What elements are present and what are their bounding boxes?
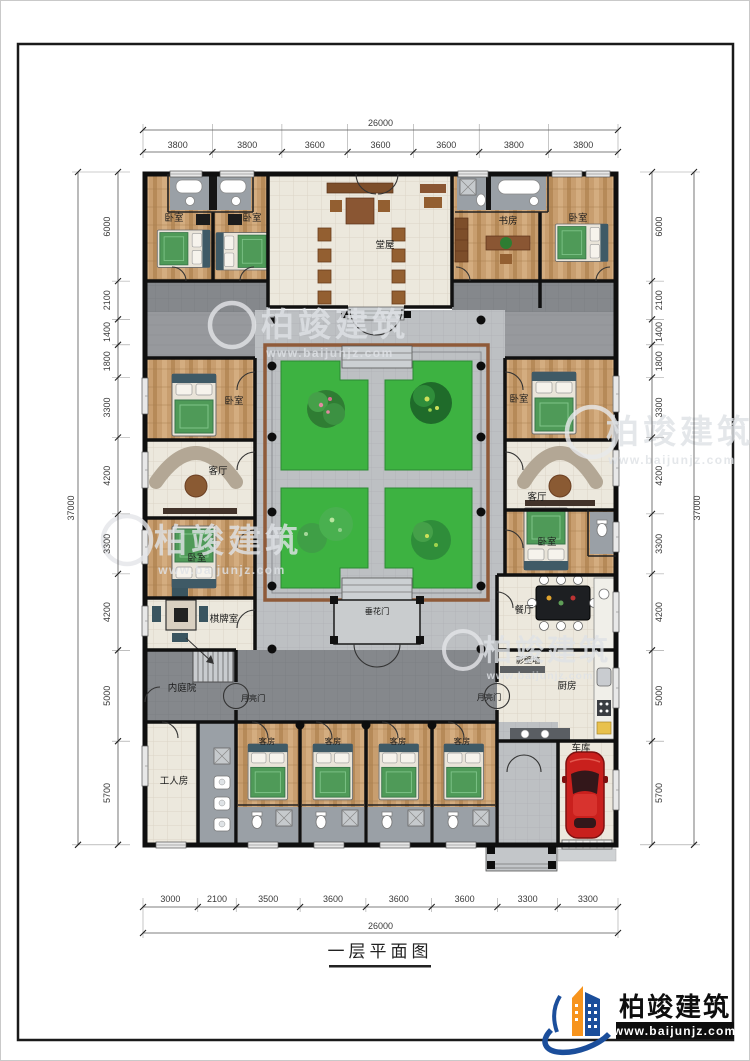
room-label-moon-gate: 月亮门: [477, 692, 502, 702]
bed: [216, 233, 269, 270]
dim-label: 4200: [102, 602, 112, 622]
tree-bottom-right: [411, 520, 451, 560]
dim-label: 3300: [654, 534, 664, 554]
room-label-bedroom: 卧室: [164, 212, 183, 224]
room-label-living: 客厅: [208, 465, 228, 477]
hall-chair: [378, 200, 390, 212]
dim-label: 3300: [102, 397, 112, 417]
watermark-site: www.baijunjz.com: [486, 670, 594, 682]
altar-table: [327, 183, 393, 193]
dim-label: 3800: [237, 140, 257, 150]
porch-left: [145, 312, 255, 358]
bed: [313, 744, 353, 800]
dim-label: 6000: [654, 217, 664, 237]
watermark-brand: 柏竣建筑: [606, 413, 750, 450]
dim-label: 4200: [654, 466, 664, 486]
room-label-flower-gate: 垂花门: [365, 606, 390, 616]
room-main-hall: [268, 174, 452, 307]
room-label-garage: 车库: [571, 742, 591, 754]
dim-total-top: 26000: [368, 118, 393, 128]
dim-label: 6000: [102, 217, 112, 237]
bed: [157, 230, 210, 267]
room-chess: [145, 598, 255, 650]
dim-label: 1400: [102, 322, 112, 342]
garage-apron: [558, 849, 616, 861]
tree-top-left: [307, 390, 345, 428]
corridor-top-left: [145, 281, 268, 312]
watermark-site: www.baijunjz.com: [157, 563, 286, 577]
car: [562, 752, 608, 838]
room-label-bedroom: 卧室: [537, 536, 556, 548]
flower-gate-structure: [330, 596, 424, 644]
dim-label: 1800: [102, 351, 112, 371]
hall-square-table: [346, 198, 374, 224]
gate-porch: [486, 845, 557, 871]
dim-total-right: 37000: [692, 495, 702, 520]
room-label-guest: 客房: [259, 736, 275, 746]
dim-label: 5000: [102, 686, 112, 706]
watermark-brand: 柏竣建筑: [154, 522, 302, 559]
room-label-bedroom: 卧室: [224, 395, 243, 407]
dim-label: 3300: [578, 894, 598, 904]
plan-title: 一层平面图: [328, 942, 433, 961]
room-label-bedroom: 卧室: [242, 212, 261, 224]
dim-label: 2100: [102, 290, 112, 310]
dim-label: 1400: [654, 322, 664, 342]
dim-label: 1800: [654, 351, 664, 371]
room-label-bedroom: 卧室: [568, 212, 587, 224]
nightstand: [228, 214, 242, 225]
plan-canvas: 卧室 卧室 堂屋 书房 卧室 卧室 客厅 卧室 棋牌室 内庭院 月亮门 垂花门 …: [0, 0, 750, 1061]
tree-top-right: [410, 382, 452, 424]
dim-label: 5700: [102, 783, 112, 803]
dim-label: 3000: [160, 894, 180, 904]
dim-label: 3600: [455, 894, 475, 904]
nightstand: [196, 214, 210, 225]
dim-label: 3300: [654, 397, 664, 417]
room-label-study: 书房: [498, 215, 517, 227]
logo-company-name: 柏竣建筑: [619, 992, 731, 1022]
room-label-worker: 工人房: [160, 775, 189, 787]
dim-label: 5000: [654, 686, 664, 706]
dim-label: 4200: [102, 466, 112, 486]
bed: [248, 744, 288, 800]
dim-label: 3600: [370, 140, 390, 150]
dim-label: 2100: [207, 894, 227, 904]
watermark-site: www.baijunjz.com: [607, 453, 736, 467]
dim-label: 3500: [258, 894, 278, 904]
room-label-inner-courtyard: 内庭院: [168, 682, 197, 694]
dim-total-left: 37000: [66, 495, 76, 520]
south-corridor: [236, 650, 497, 722]
dim-total-bottom: 26000: [368, 921, 393, 931]
hall-chair: [330, 200, 342, 212]
dim-label: 5700: [654, 783, 664, 803]
room-label-dining: 餐厅: [514, 604, 534, 616]
room-label-guest: 客房: [390, 736, 406, 746]
dim-label: 3800: [504, 140, 524, 150]
room-label-living: 客厅: [527, 491, 547, 503]
dim-label: 3800: [168, 140, 188, 150]
watermark-brand: 柏竣建筑: [261, 306, 409, 343]
dim-label: 3800: [573, 140, 593, 150]
room-label-guest: 客房: [454, 736, 470, 746]
dim-label: 3600: [305, 140, 325, 150]
floor-plan-sheet: 卧室 卧室 堂屋 书房 卧室 卧室 客厅 卧室 棋牌室 内庭院 月亮门 垂花门 …: [0, 0, 750, 1061]
porch-right: [505, 312, 616, 358]
room-label-bedroom: 卧室: [509, 393, 528, 405]
dim-label: 3600: [323, 894, 343, 904]
room-label-chess: 棋牌室: [210, 613, 239, 625]
room-label-guest: 客房: [325, 736, 341, 746]
bed: [379, 744, 419, 800]
logo-website: www.baijunjz.com: [613, 1024, 737, 1038]
central-courtyard: [265, 345, 488, 644]
dim-label: 4200: [654, 602, 664, 622]
bed: [172, 374, 216, 436]
room-label-moon-gate: 月亮门: [241, 693, 266, 703]
dim-label: 3600: [389, 894, 409, 904]
corridor-top-right: [452, 281, 616, 312]
title-underline: [329, 965, 431, 968]
bed: [444, 744, 484, 800]
courtyard-steps-south: [342, 578, 412, 600]
watermark-site: www.baijunjz.com: [265, 346, 394, 360]
watermark-brand: 柏竣建筑: [483, 633, 611, 667]
bed: [555, 224, 608, 261]
dim-label: 3600: [436, 140, 456, 150]
dim-label: 3300: [102, 534, 112, 554]
dim-label: 2100: [654, 290, 664, 310]
room-label-main-hall: 堂屋: [375, 239, 394, 251]
dim-label: 3300: [518, 894, 538, 904]
